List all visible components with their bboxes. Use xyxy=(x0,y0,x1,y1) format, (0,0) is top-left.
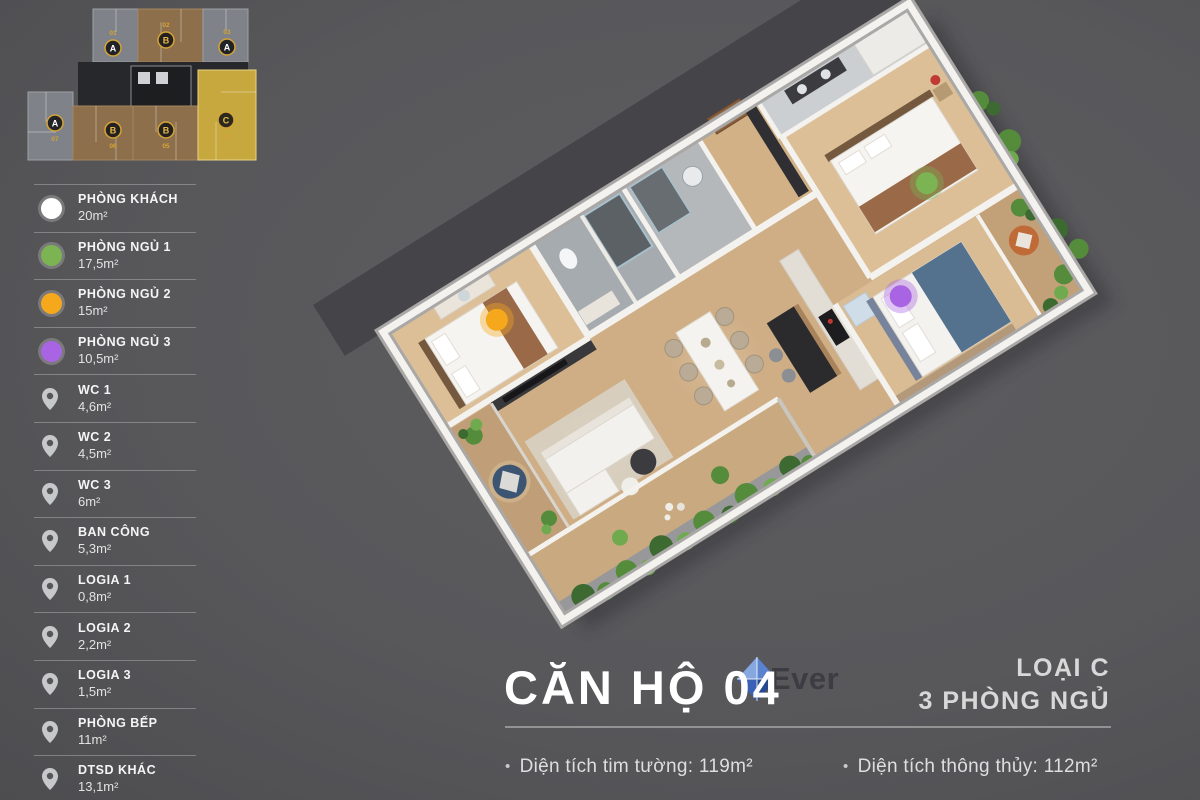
unit-title: CĂN HỘ 04 xyxy=(504,660,782,715)
floorplan-page: A01B02A03A07B06B05C04 PHÒNG KHÁCH20m²PHÒ… xyxy=(0,0,1200,800)
unit-bedrooms-label: 3 PHÒNG NGỦ xyxy=(918,685,1110,718)
unit-type-block: LOẠI C 3 PHÒNG NGỦ xyxy=(918,652,1110,718)
unit-type-label: LOẠI C xyxy=(918,652,1110,685)
